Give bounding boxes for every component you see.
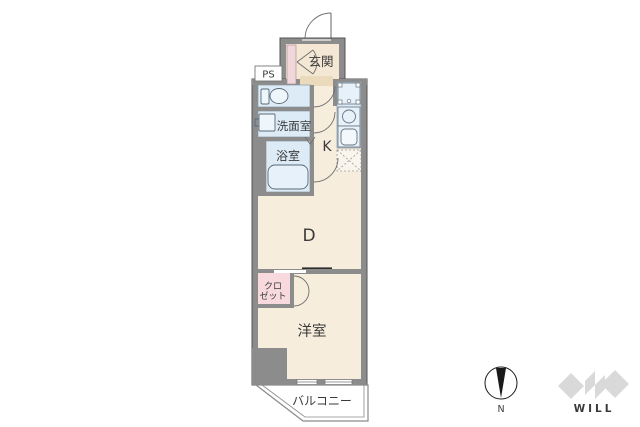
bathtub-icon — [268, 165, 308, 189]
shoe-cabinet — [287, 45, 296, 84]
compass-icon: N — [485, 367, 517, 415]
will-logo: WILL — [558, 370, 629, 415]
label-closet-line2: ゼット — [259, 290, 286, 302]
fridge-space — [337, 150, 361, 171]
label-kitchen: K — [322, 139, 332, 155]
sink-icon — [338, 126, 360, 147]
label-pipe-space: PS — [262, 70, 274, 81]
label-closet-line1: クロ — [264, 281, 282, 292]
label-entrance: 玄関 — [308, 54, 333, 69]
washer-pan-icon — [338, 83, 360, 104]
entrance-step — [300, 76, 333, 86]
label-bedroom: 洋室 — [298, 323, 327, 340]
label-balcony: バルコニー — [292, 394, 352, 408]
stove-icon — [338, 107, 360, 126]
label-bathroom: 浴室 — [276, 148, 300, 163]
label-dining: D — [302, 226, 315, 246]
toilet-icon — [261, 89, 288, 105]
label-washroom: 洗面室 — [277, 119, 312, 133]
pipe-space-box: PS — [255, 66, 282, 81]
floorplan-image: PS 玄関 洗面室 浴室 K D クロ ゼット 洋室 バルコニー N WILL — [0, 0, 640, 427]
compass-north-label: N — [497, 404, 504, 415]
will-logo-text: WILL — [574, 403, 615, 415]
entry-door-arc — [302, 13, 331, 40]
